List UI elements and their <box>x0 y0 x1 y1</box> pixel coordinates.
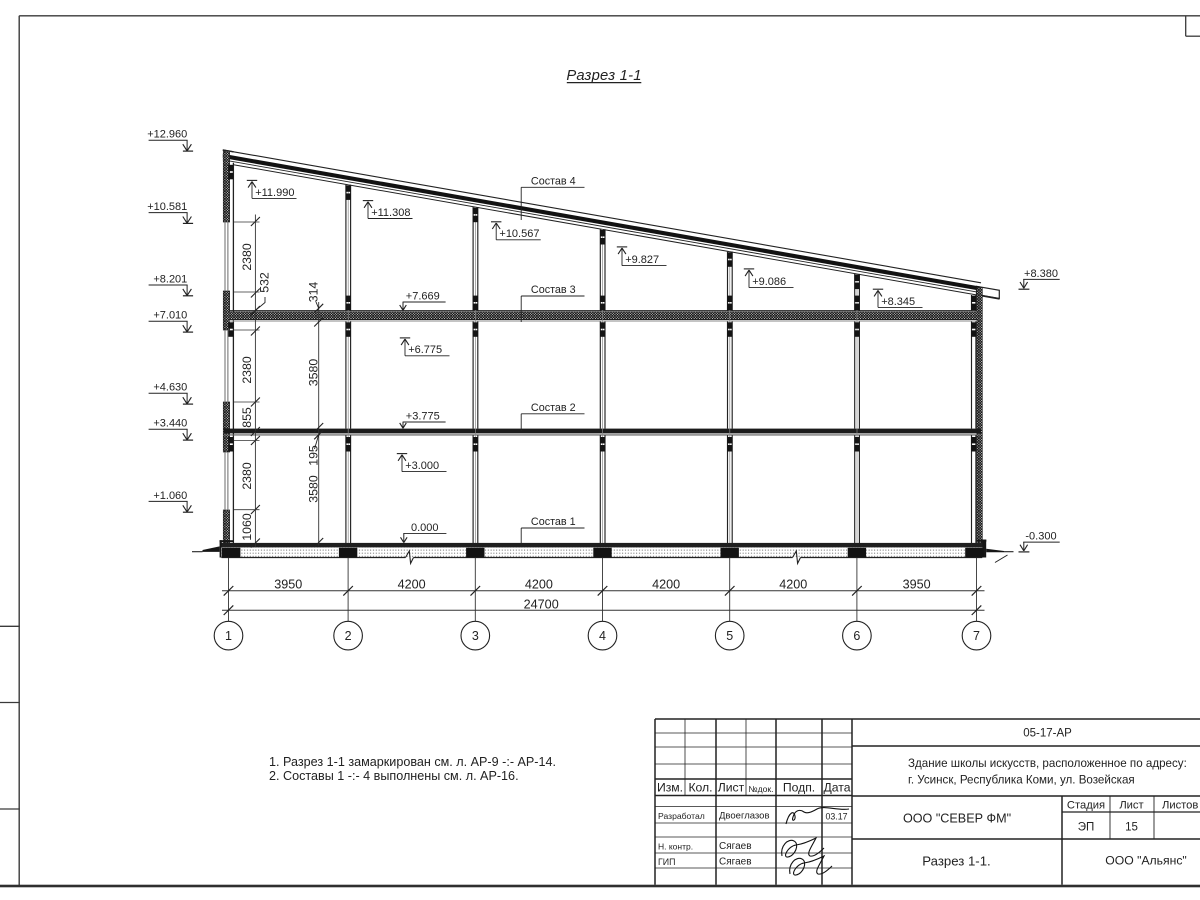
svg-text:2380: 2380 <box>240 356 254 384</box>
svg-text:3580: 3580 <box>306 475 320 503</box>
svg-text:15: 15 <box>1125 822 1138 834</box>
svg-text:1. Разрез 1-1 замаркирован см.: 1. Разрез 1-1 замаркирован см. л. АР-9 -… <box>269 755 556 769</box>
svg-text:+8.380: +8.380 <box>1024 268 1058 280</box>
svg-text:Разрез 1-1.: Разрез 1-1. <box>922 854 990 869</box>
svg-text:Лист: Лист <box>718 781 745 795</box>
svg-text:1: 1 <box>225 629 232 643</box>
svg-text:5: 5 <box>726 629 733 643</box>
svg-text:1060: 1060 <box>240 513 254 541</box>
svg-text:Состав 4: Состав 4 <box>531 175 576 187</box>
svg-text:Изм.: Изм. <box>657 781 683 795</box>
svg-text:2. Составы 1 -:- 4 выполнены с: 2. Составы 1 -:- 4 выполнены см. л. АР-1… <box>269 769 519 783</box>
svg-text:Дата: Дата <box>824 781 851 795</box>
svg-text:532: 532 <box>257 272 271 293</box>
svg-text:+12.960: +12.960 <box>147 129 187 141</box>
svg-text:4200: 4200 <box>525 578 553 592</box>
svg-text:314: 314 <box>306 282 320 303</box>
svg-text:+3.440: +3.440 <box>153 418 187 430</box>
svg-text:03.17: 03.17 <box>825 812 847 822</box>
svg-text:ГИП: ГИП <box>658 857 675 867</box>
svg-text:3950: 3950 <box>903 578 931 592</box>
svg-text:4200: 4200 <box>779 578 807 592</box>
svg-text:+10.567: +10.567 <box>499 228 539 240</box>
svg-text:г. Усинск, Республика Коми, ул: г. Усинск, Республика Коми, ул. Возейска… <box>908 774 1135 787</box>
svg-text:+6.775: +6.775 <box>408 344 442 356</box>
svg-text:+9.827: +9.827 <box>625 254 659 266</box>
svg-text:Н. контр.: Н. контр. <box>658 841 693 851</box>
svg-text:+9.086: +9.086 <box>752 276 786 288</box>
svg-text:+4.630: +4.630 <box>153 382 187 394</box>
svg-text:Сягаев: Сягаев <box>719 857 752 868</box>
svg-text:0.000: 0.000 <box>411 522 439 534</box>
svg-text:+8.201: +8.201 <box>153 273 187 285</box>
svg-text:4: 4 <box>599 629 606 643</box>
svg-text:6: 6 <box>853 629 860 643</box>
svg-text:ЭП: ЭП <box>1078 822 1095 834</box>
svg-text:2: 2 <box>345 629 352 643</box>
svg-text:№док.: №док. <box>748 784 773 794</box>
svg-text:3950: 3950 <box>274 578 302 592</box>
svg-text:05-17-АР: 05-17-АР <box>1023 728 1072 740</box>
svg-text:3: 3 <box>472 629 479 643</box>
svg-text:2380: 2380 <box>240 243 254 271</box>
svg-text:+8.345: +8.345 <box>881 296 915 308</box>
svg-text:Здание школы искусств, располо: Здание школы искусств, расположенное по … <box>908 757 1187 770</box>
svg-text:Двоеглазов: Двоеглазов <box>719 810 770 821</box>
svg-text:-0.300: -0.300 <box>1025 531 1056 543</box>
svg-text:+3.000: +3.000 <box>405 460 439 472</box>
svg-text:24700: 24700 <box>524 597 559 611</box>
svg-text:Подп.: Подп. <box>783 781 815 795</box>
svg-text:Кол.: Кол. <box>688 781 712 795</box>
svg-text:Состав 1: Состав 1 <box>531 516 576 528</box>
svg-text:4200: 4200 <box>398 578 426 592</box>
svg-text:+11.990: +11.990 <box>255 187 294 199</box>
svg-text:+10.581: +10.581 <box>147 201 187 213</box>
svg-text:Состав 2: Состав 2 <box>531 402 576 414</box>
svg-text:Лист: Лист <box>1119 800 1143 812</box>
svg-text:+11.308: +11.308 <box>371 207 410 219</box>
svg-text:2380: 2380 <box>240 462 254 490</box>
svg-text:ООО "СЕВЕР ФМ": ООО "СЕВЕР ФМ" <box>903 812 1011 826</box>
svg-text:Стадия: Стадия <box>1067 800 1105 812</box>
svg-text:+7.669: +7.669 <box>406 290 440 302</box>
svg-text:+1.060: +1.060 <box>153 490 187 502</box>
svg-text:+7.010: +7.010 <box>153 310 187 322</box>
svg-text:195: 195 <box>306 445 320 466</box>
svg-text:ООО "Альянс": ООО "Альянс" <box>1105 854 1187 868</box>
svg-text:7: 7 <box>973 629 980 643</box>
svg-text:+3.775: +3.775 <box>406 410 440 422</box>
svg-text:3580: 3580 <box>306 359 320 387</box>
svg-text:Сягаев: Сягаев <box>719 841 752 852</box>
svg-text:Листов: Листов <box>1162 800 1198 812</box>
svg-text:4200: 4200 <box>652 578 680 592</box>
svg-text:Состав 3: Состав 3 <box>531 284 576 296</box>
svg-text:Разработал: Разработал <box>658 811 705 821</box>
svg-text:Разрез 1-1: Разрез 1-1 <box>566 68 641 84</box>
svg-text:855: 855 <box>240 407 254 428</box>
